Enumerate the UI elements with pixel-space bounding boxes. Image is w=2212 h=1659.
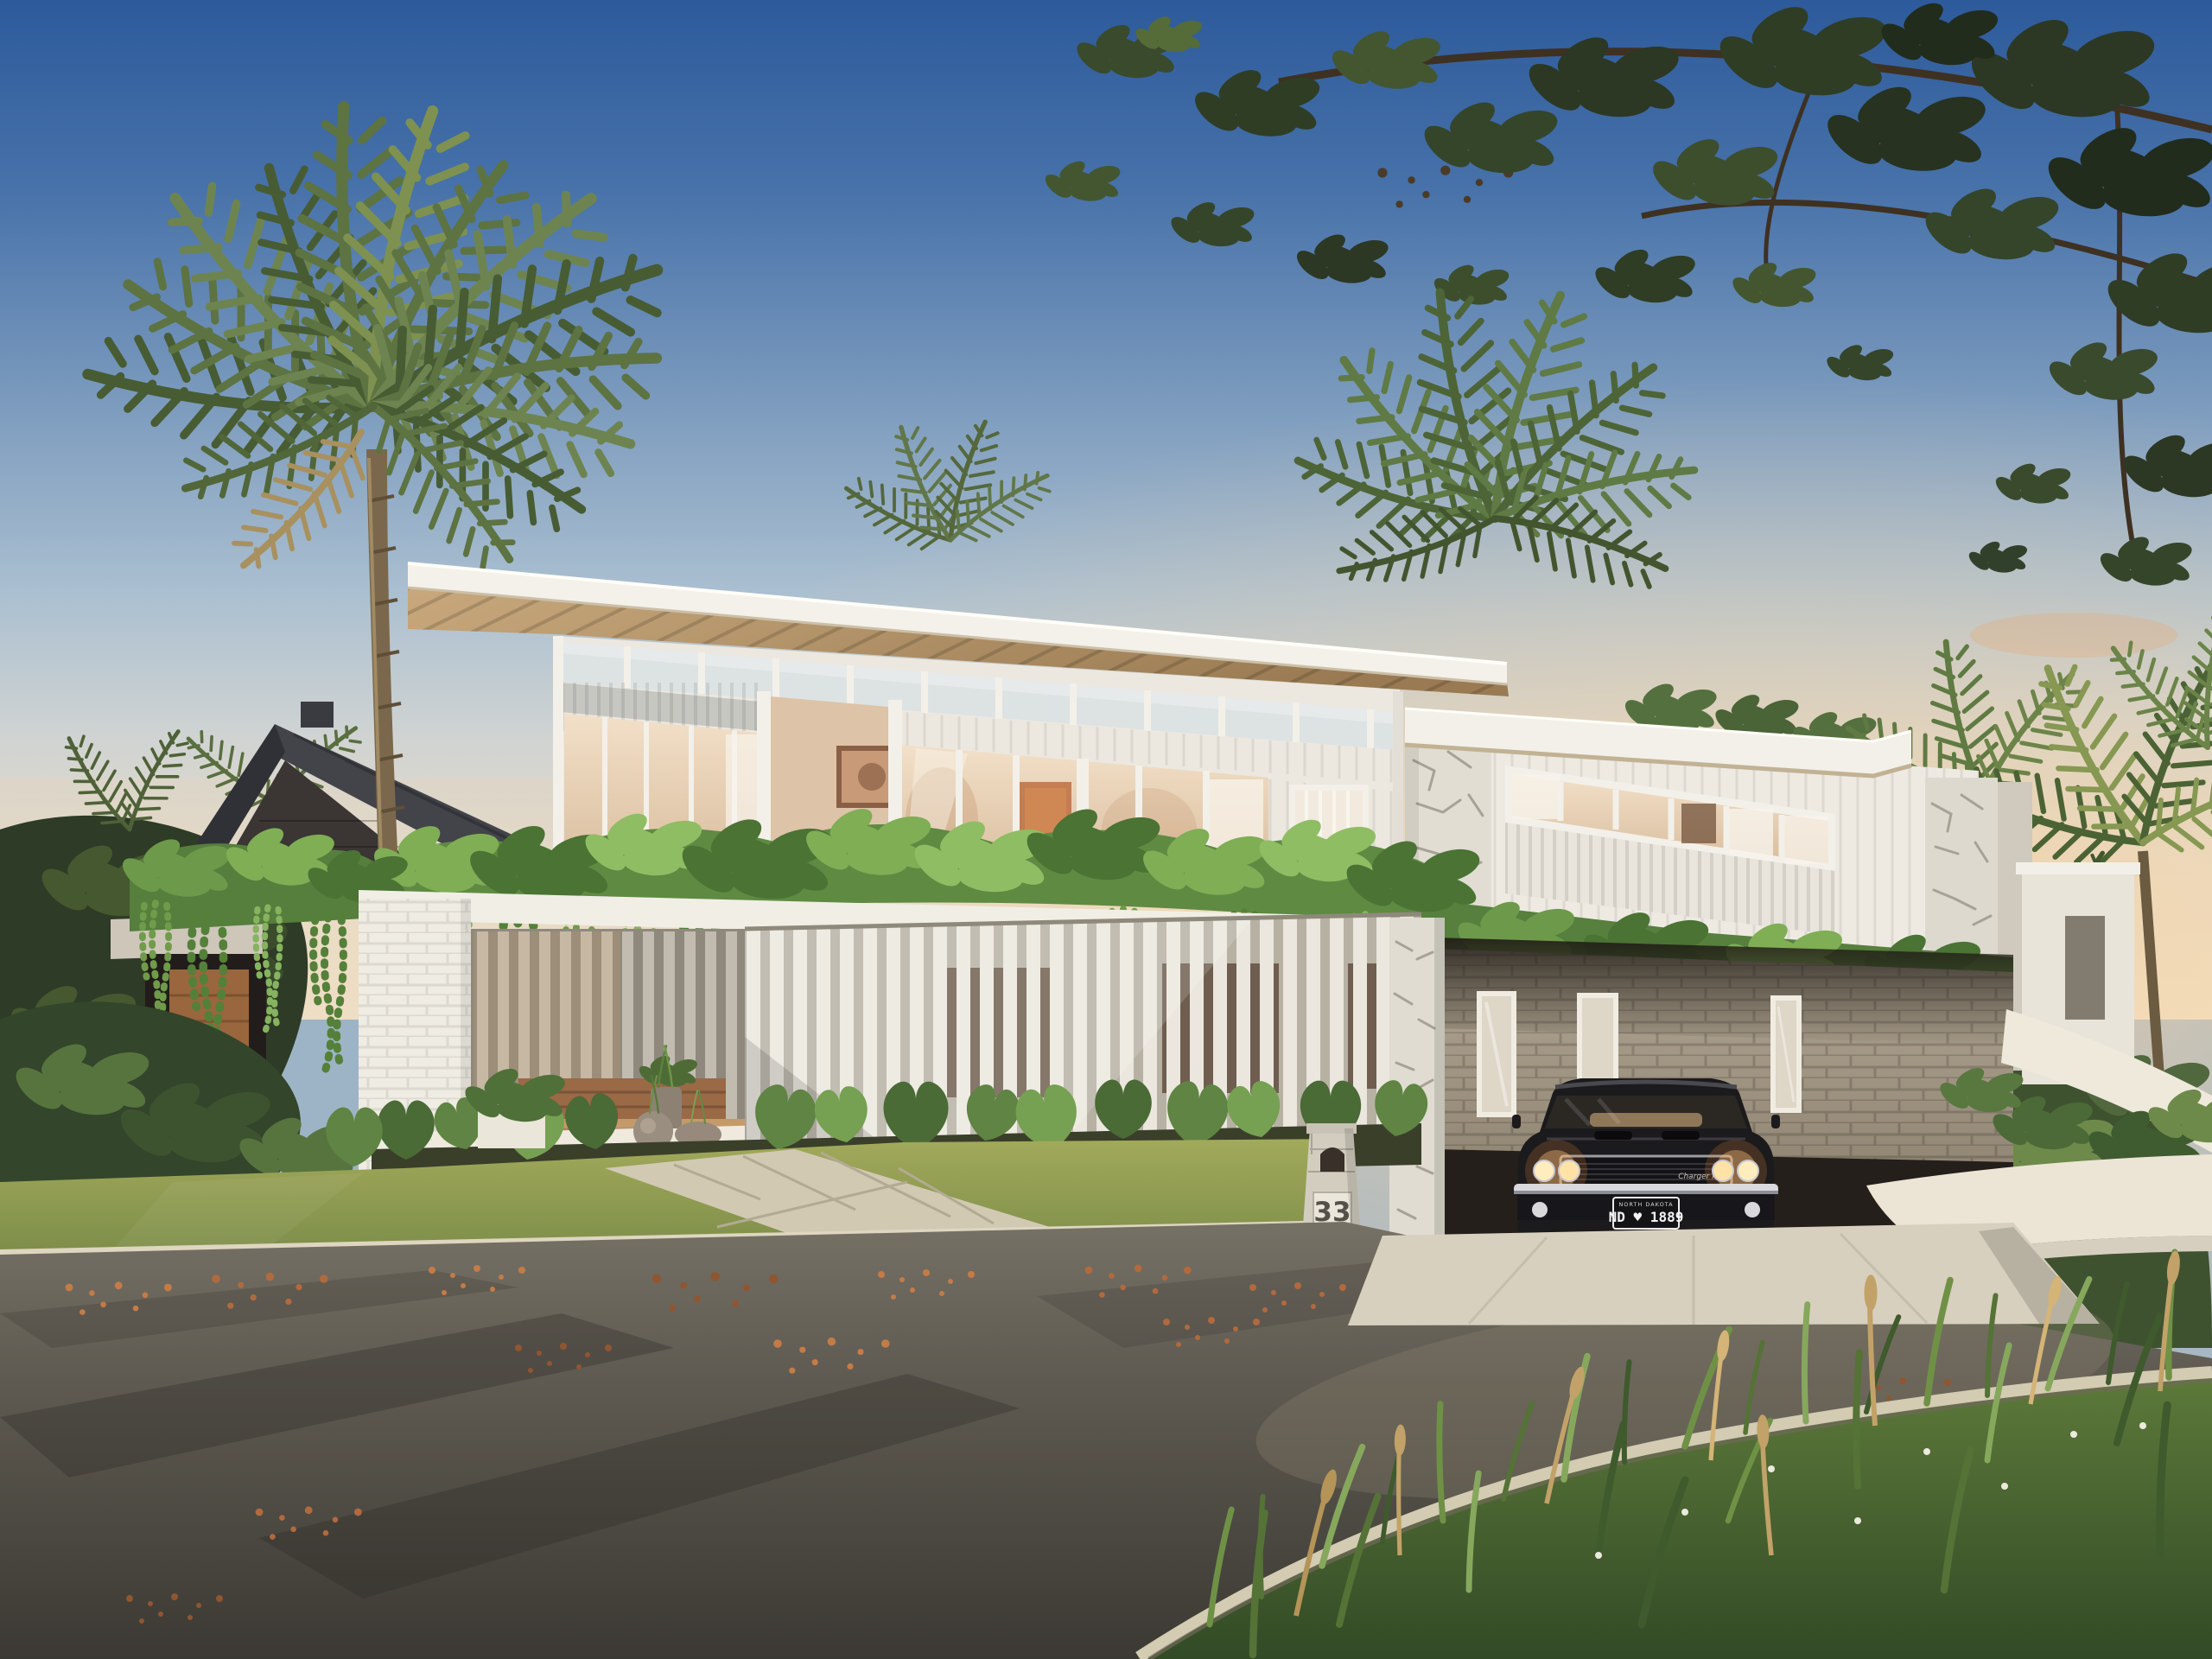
upper-corner-trim <box>553 636 563 874</box>
license-plate: NORTH DAKOTA ND ♥ 1889 <box>1609 1198 1684 1229</box>
sheer-curtain <box>1512 774 1560 819</box>
sheer-curtain <box>1782 816 1828 864</box>
carport-ceiling-shadow <box>1434 938 2013 1046</box>
driveway-apron <box>1348 1223 2100 1325</box>
car-interior <box>1590 1113 1702 1127</box>
side-mirror <box>1512 1115 1521 1128</box>
hood-scoop <box>1662 1131 1700 1140</box>
sheer-curtain <box>1726 809 1773 861</box>
hood-scoop <box>1594 1131 1632 1140</box>
wing-artwork <box>1681 804 1716 843</box>
side-mirror <box>1771 1115 1780 1128</box>
plate-number: ND ♥ 1889 <box>1609 1209 1684 1225</box>
carport-window <box>1479 994 1514 1115</box>
fog-light <box>1532 1202 1548 1217</box>
plate-header: NORTH DAKOTA <box>1618 1201 1673 1208</box>
carport-window <box>1773 998 1799 1110</box>
neighbor-chimney <box>301 702 334 728</box>
architectural-render: Charger R/T NORTH DAKOTA ND ♥ 1889 <box>0 0 2212 1659</box>
fog-light <box>1745 1202 1760 1217</box>
letterbox-slot <box>1320 1147 1344 1172</box>
cloud-wisp <box>1970 613 2177 658</box>
